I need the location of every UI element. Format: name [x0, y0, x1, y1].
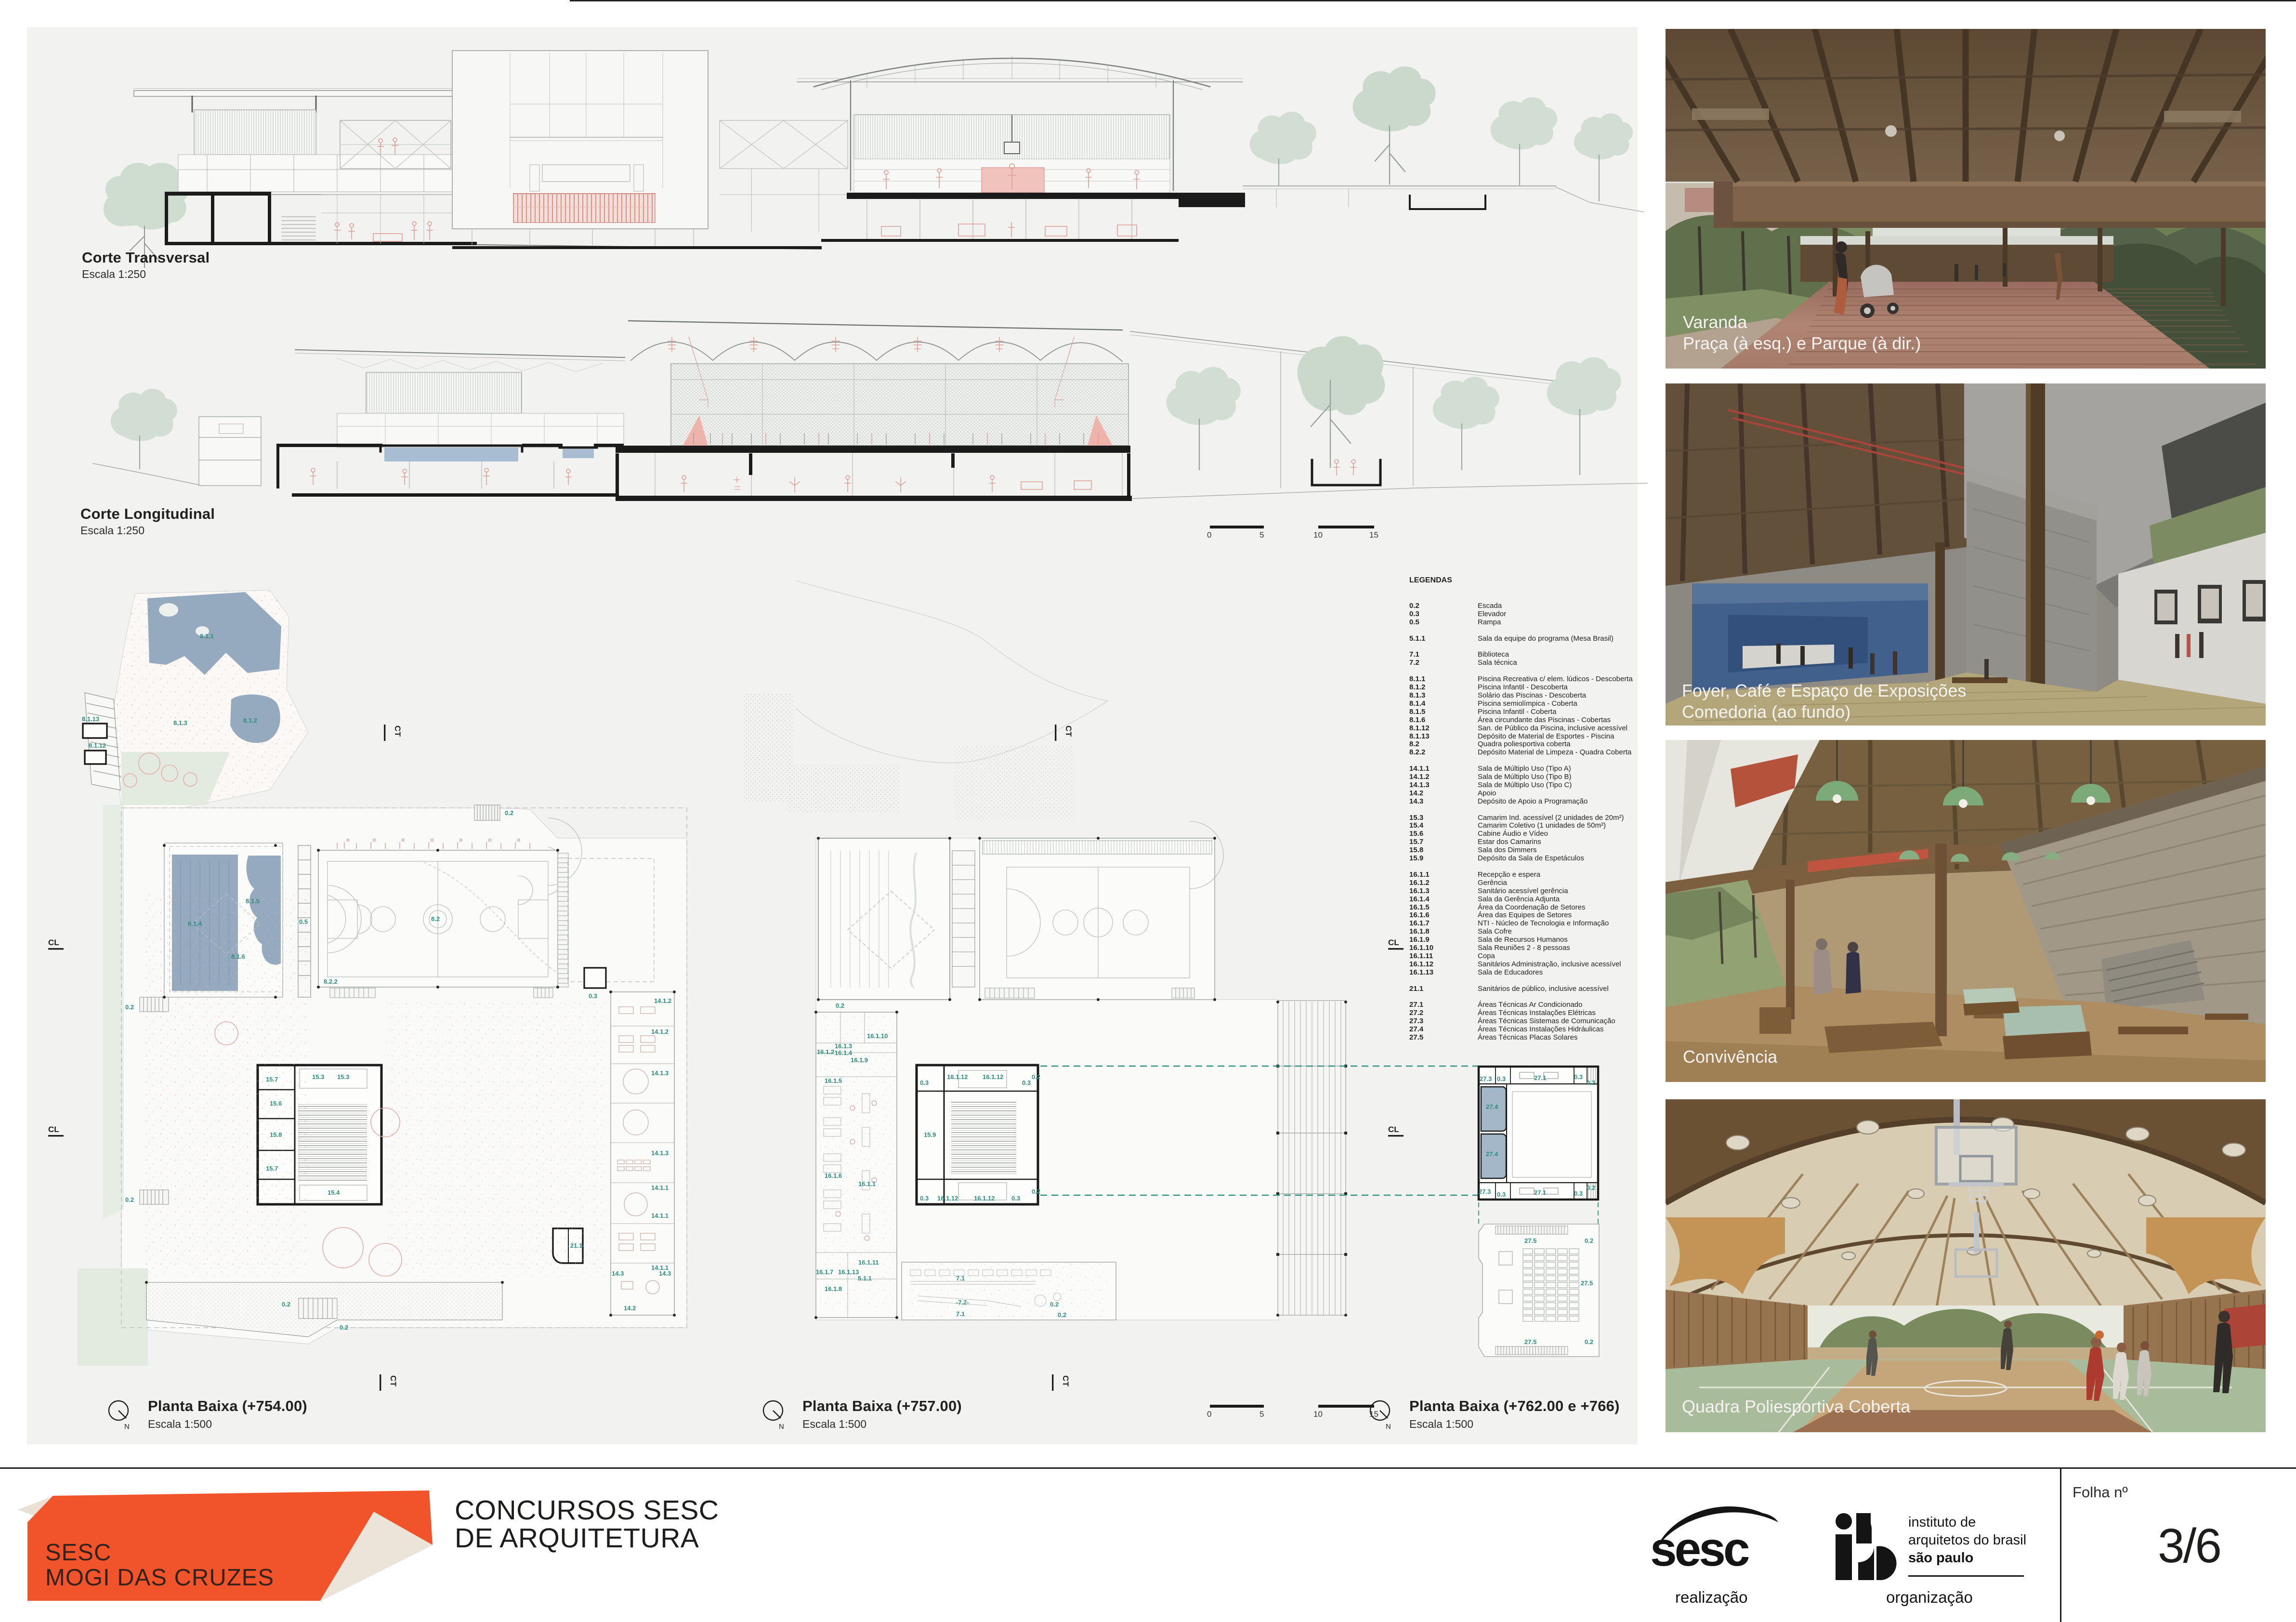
svg-text:CT: CT [1064, 725, 1073, 737]
svg-text:0.2: 0.2 [125, 1003, 134, 1011]
svg-text:0: 0 [1207, 1410, 1211, 1419]
svg-text:14.1.3: 14.1.3 [651, 1149, 669, 1157]
svg-text:N: N [779, 1423, 784, 1431]
svg-text:CL: CL [1388, 938, 1399, 947]
svg-text:15.4: 15.4 [328, 1189, 340, 1196]
svg-text:27.3: 27.3 [1480, 1075, 1492, 1082]
svg-text:0.2: 0.2 [340, 1324, 348, 1331]
svg-text:8.1.1: 8.1.1 [200, 633, 214, 640]
svg-text:16.1.12: 16.1.12 [974, 1195, 995, 1202]
svg-text:0.3: 0.3 [1574, 1190, 1583, 1197]
svg-text:8.1.2: 8.1.2 [243, 717, 257, 724]
svg-text:0.3: 0.3 [589, 992, 597, 1000]
svg-text:CT: CT [1061, 1375, 1070, 1387]
svg-text:14.1.3: 14.1.3 [651, 1069, 669, 1077]
svg-text:27.5: 27.5 [1581, 1279, 1593, 1287]
svg-text:N: N [1386, 1423, 1391, 1431]
svg-text:0.2: 0.2 [1032, 1188, 1040, 1195]
svg-text:10: 10 [1313, 1410, 1323, 1419]
svg-text:0.3: 0.3 [1022, 1079, 1031, 1086]
svg-text:27.5: 27.5 [1524, 1338, 1536, 1345]
svg-text:27.4: 27.4 [1486, 1103, 1498, 1110]
svg-text:27.1: 27.1 [1534, 1189, 1546, 1196]
svg-text:0.3: 0.3 [1011, 1195, 1020, 1202]
svg-text:15: 15 [1369, 1410, 1378, 1419]
svg-text:16.1.12: 16.1.12 [983, 1073, 1003, 1081]
svg-text:27.5: 27.5 [1524, 1237, 1536, 1244]
svg-text:0.2: 0.2 [505, 809, 513, 817]
svg-text:14.3: 14.3 [612, 1270, 624, 1277]
svg-text:5: 5 [1260, 1410, 1264, 1419]
svg-text:CL: CL [48, 1125, 59, 1134]
svg-text:8.1.3: 8.1.3 [173, 719, 187, 726]
svg-text:0.2: 0.2 [1032, 1073, 1040, 1081]
svg-text:N: N [124, 1423, 130, 1431]
svg-text:16.1.12: 16.1.12 [937, 1195, 958, 1202]
svg-text:0.3: 0.3 [920, 1079, 929, 1086]
svg-text:0.2: 0.2 [125, 1196, 134, 1203]
svg-text:8.2: 8.2 [431, 915, 440, 923]
svg-text:14.1.1: 14.1.1 [651, 1184, 669, 1191]
svg-text:8.2.2: 8.2.2 [324, 978, 338, 985]
svg-text:0.2: 0.2 [836, 1002, 844, 1009]
svg-text:5: 5 [1260, 530, 1264, 540]
svg-text:14.1.1: 14.1.1 [651, 1212, 669, 1219]
svg-text:14.2: 14.2 [624, 1305, 636, 1312]
svg-text:27.4: 27.4 [1486, 1150, 1498, 1158]
svg-text:27.1: 27.1 [1534, 1074, 1546, 1081]
svg-text:27.3: 27.3 [1479, 1188, 1491, 1195]
svg-text:16.1.12: 16.1.12 [947, 1073, 968, 1081]
svg-text:15.3: 15.3 [337, 1073, 349, 1081]
svg-text:0.3: 0.3 [920, 1195, 929, 1202]
svg-text:0.2: 0.2 [1585, 1237, 1593, 1244]
svg-text:0.3: 0.3 [1574, 1073, 1583, 1081]
svg-text:CL: CL [1388, 1125, 1399, 1134]
svg-text:0.2: 0.2 [1587, 1184, 1595, 1191]
svg-text:0.2: 0.2 [1587, 1079, 1595, 1086]
svg-text:sesc: sesc [1650, 1522, 1749, 1576]
svg-text:14.1.2: 14.1.2 [651, 1028, 669, 1035]
svg-text:CT: CT [389, 1375, 398, 1387]
svg-text:15.3: 15.3 [312, 1073, 324, 1081]
svg-text:CT: CT [393, 725, 402, 737]
svg-text:CL: CL [48, 938, 59, 947]
svg-text:14.3: 14.3 [659, 1270, 671, 1277]
svg-text:0: 0 [1207, 530, 1211, 540]
svg-text:15: 15 [1369, 530, 1378, 540]
svg-text:15.9: 15.9 [924, 1131, 936, 1138]
svg-text:0.2: 0.2 [282, 1301, 290, 1308]
svg-text:10: 10 [1313, 530, 1323, 540]
svg-text:0.3: 0.3 [1497, 1075, 1506, 1082]
svg-text:8.1.12: 8.1.12 [89, 742, 106, 749]
svg-text:0.3: 0.3 [1497, 1191, 1506, 1198]
svg-text:0.2: 0.2 [1585, 1338, 1593, 1345]
svg-text:8.1.13: 8.1.13 [82, 715, 99, 723]
svg-text:14.1.2: 14.1.2 [654, 997, 671, 1004]
